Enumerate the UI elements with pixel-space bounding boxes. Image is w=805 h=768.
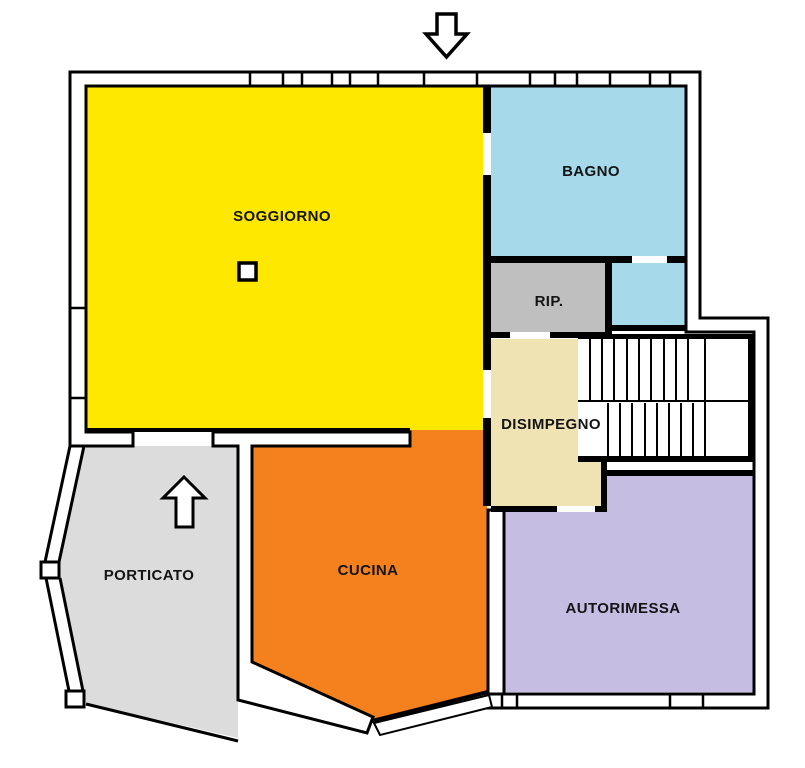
wall-soggiorno-disimpegno	[483, 418, 491, 506]
wall-bagno-annex-bottom	[605, 325, 686, 331]
room-soggiorno-label: SOGGIORNO	[233, 208, 331, 225]
room-porticato-label: PORTICATO	[104, 567, 195, 584]
wall-stair-right	[748, 334, 754, 462]
floor-plan: SOGGIORNO BAGNO RIP. DISIMPEGNO CUCINA P…	[0, 0, 805, 768]
entrance-arrow-down-icon	[426, 14, 467, 57]
column-pillar	[239, 263, 256, 280]
wall-band-cucina-autorimessa	[488, 510, 504, 694]
wall-soggiorno-bagno	[483, 175, 491, 370]
wall-disimpegno-right	[601, 456, 607, 512]
room-disimpegno-label: DISIMPEGNO	[501, 416, 601, 433]
wall-rip-right	[605, 262, 612, 332]
staircase	[578, 336, 748, 456]
wall-disimpegno-bottom	[595, 506, 607, 512]
wall-rip-bottom	[483, 332, 510, 338]
room-cucina-label: CUCINA	[338, 562, 399, 579]
room-bagno-label: BAGNO	[562, 163, 620, 180]
wall-bagno-bottom	[667, 256, 686, 263]
porch-pillar	[66, 691, 84, 707]
wall-autorimessa-top	[601, 470, 753, 476]
wall-stair-top	[578, 334, 754, 339]
wall-soggiorno-bagno	[483, 86, 491, 133]
porch-pillar	[41, 562, 59, 578]
room-autorimessa-label: AUTORIMESSA	[566, 600, 681, 617]
room-rip-label: RIP.	[535, 293, 564, 310]
room-soggiorno-area	[86, 86, 483, 430]
floor-plan-page: SOGGIORNO BAGNO RIP. DISIMPEGNO CUCINA P…	[0, 0, 805, 768]
room-bagno-annex-area	[612, 263, 686, 325]
wall-bagno-bottom	[483, 256, 632, 263]
wall-disimpegno-bottom	[491, 506, 557, 512]
room-porticato-area	[59, 446, 238, 738]
room-areas	[59, 86, 753, 738]
